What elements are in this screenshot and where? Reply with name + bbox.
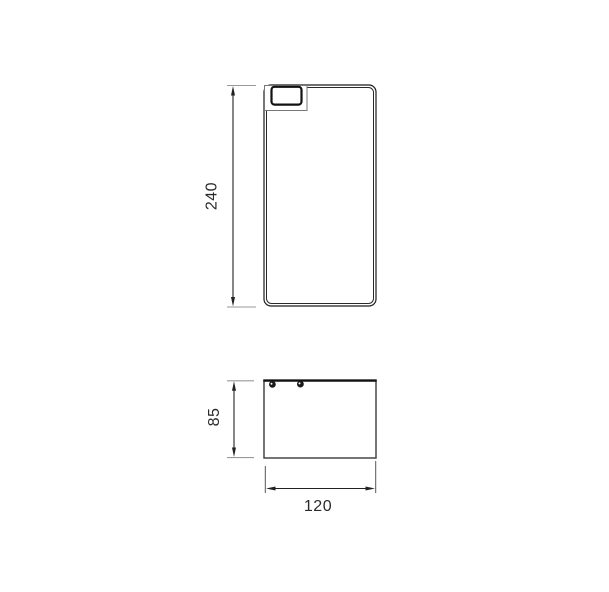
dim-base-height-arrowhead-down <box>232 448 236 458</box>
dim-front-height-arrowhead-down <box>231 297 235 307</box>
dim-front-height: 240 <box>204 86 257 308</box>
dim-front-height-arrowhead-up <box>231 86 235 96</box>
technical-drawing-page: 240 85 120 <box>0 0 609 592</box>
base-view-outline <box>264 380 376 458</box>
base-height-dim-label: 85 <box>206 408 223 427</box>
front-view-outline <box>264 85 376 306</box>
front-height-dim-label: 240 <box>204 182 221 210</box>
dim-base-width: 120 <box>265 461 375 515</box>
technical-drawing-canvas: 240 85 120 <box>0 0 609 592</box>
screw-right-icon <box>297 381 304 388</box>
front-view <box>264 85 376 306</box>
dim-base-width-arrowhead-left <box>266 487 276 491</box>
dim-base-width-arrowhead-right <box>366 487 376 491</box>
screw-left-icon <box>269 381 276 388</box>
dim-base-height: 85 <box>206 381 254 458</box>
screw-right-highlight <box>299 382 301 384</box>
dim-base-height-arrowhead-up <box>232 381 236 391</box>
base-view <box>263 380 376 458</box>
head-detail-inner-box <box>272 87 302 105</box>
front-view-inner-outline <box>267 88 374 304</box>
base-width-dim-label: 120 <box>304 498 332 515</box>
screw-left-highlight <box>271 383 273 385</box>
